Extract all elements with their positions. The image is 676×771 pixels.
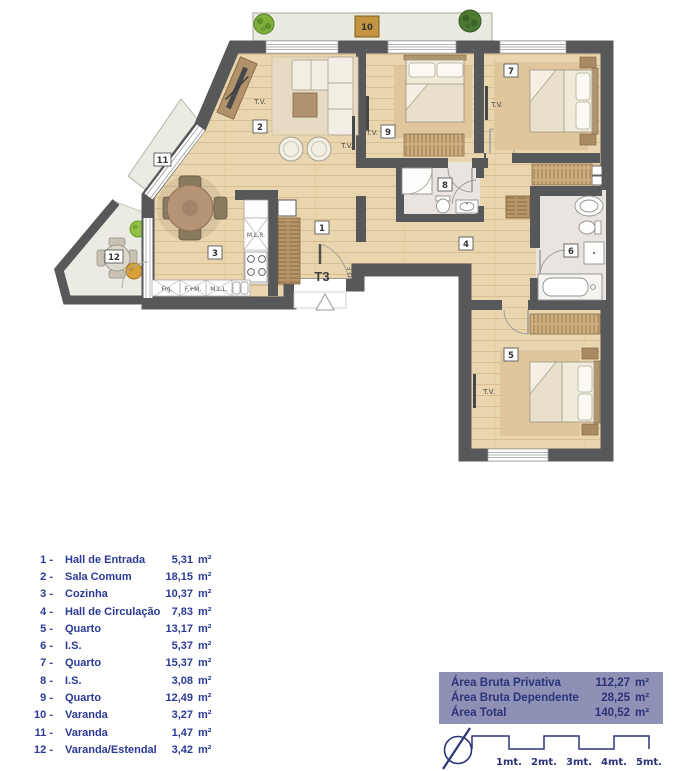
plant-icon	[459, 10, 481, 32]
svg-text:11: 11	[157, 156, 169, 166]
balcony-10: 10	[253, 10, 492, 41]
legend-row: 9 -Quarto12,49m²	[30, 689, 240, 706]
svg-text:3: 3	[212, 249, 218, 259]
legend-number: 1 -	[30, 554, 53, 566]
unit-type-label: T3	[314, 269, 329, 284]
window-room5	[488, 449, 548, 461]
tv-wall-mount	[485, 86, 488, 120]
sink	[456, 200, 478, 213]
legend-row: 2 -Sala Comum18,15m²	[30, 568, 240, 585]
svg-text:1mt.: 1mt.	[496, 757, 522, 768]
tv-label-living-2: T.V.	[340, 142, 353, 150]
balcony-12	[59, 202, 148, 300]
window-room7	[500, 41, 566, 53]
legend-area-value: 5,31	[157, 554, 193, 566]
svg-text:1: 1	[319, 224, 325, 234]
room-label-4: 4	[459, 237, 473, 250]
legend-row: 8 -I.S.3,08m²	[30, 672, 240, 689]
wardrobe	[404, 134, 464, 156]
svg-text:6: 6	[568, 247, 574, 257]
window-room9	[388, 41, 456, 53]
summary-row: Área Total140,52m²	[439, 707, 663, 719]
svg-text:5mt.: 5mt.	[636, 757, 662, 768]
room-label-10: 10	[361, 23, 373, 33]
legend-row: 4 -Hall de Circulação7,83m²	[30, 603, 240, 620]
nightstand	[582, 348, 598, 359]
floor-plan-page: 10	[0, 0, 676, 771]
summary-value: 112,27	[584, 677, 630, 689]
compass-and-scale: 1mt. 2mt. 3mt. 4mt. 5mt.	[437, 723, 667, 771]
dishwasher-label: M.L.L.	[210, 286, 228, 293]
sink	[575, 196, 603, 216]
room-label-7: 7	[504, 64, 518, 77]
kitchen-counter-right	[244, 200, 268, 284]
wardrobe	[530, 314, 600, 334]
washer-label: M.L.R.	[247, 232, 265, 239]
fridge-label: Frg.	[161, 286, 172, 293]
floor-plan-drawing: 10	[0, 0, 676, 545]
svg-text:3mt.: 3mt.	[566, 757, 592, 768]
room-label-1: 1	[315, 221, 329, 234]
shower	[402, 168, 432, 194]
toilet	[579, 221, 601, 234]
summary-row: Área Bruta Dependente28,25m²	[439, 692, 663, 704]
wardrobe	[532, 164, 592, 185]
legend-row: 7 -Quarto15,37m²	[30, 655, 240, 672]
room-label-2: 2	[253, 120, 267, 133]
tv-wall-mount	[473, 374, 476, 408]
tv-wall-mount	[366, 96, 369, 130]
area-summary-table: Área Bruta Privativa112,27m² Área Bruta …	[439, 672, 663, 724]
nightstand	[582, 424, 598, 435]
summary-row: Área Bruta Privativa112,27m²	[439, 677, 663, 689]
summary-label: Área Bruta Privativa	[451, 677, 584, 689]
oven-label: F.+M.	[185, 286, 202, 293]
legend-row: 10 -Varanda3,27m²	[30, 707, 240, 724]
room-label-12: 12	[105, 250, 123, 263]
room-label-8: 8	[438, 178, 452, 191]
room-label-3: 3	[208, 246, 222, 259]
hob	[245, 252, 267, 282]
scale-bar	[472, 736, 649, 749]
coffee-table	[293, 93, 317, 117]
bed	[530, 68, 598, 134]
scale-bar-labels: 1mt. 2mt. 3mt. 4mt. 5mt.	[496, 757, 662, 768]
summary-unit: m²	[630, 677, 655, 689]
room-legend: 1 -Hall de Entrada5,31m² 2 -Sala Comum18…	[30, 551, 240, 759]
legend-row: 5 -Quarto13,17m²	[30, 620, 240, 637]
bed	[530, 361, 600, 423]
plant-icon	[254, 14, 274, 34]
legend-row: 12 -Varanda/Estendal3,42m²	[30, 741, 240, 758]
svg-text:12: 12	[108, 253, 120, 263]
svg-text:2mt.: 2mt.	[531, 757, 557, 768]
electrical-board-label: Q.E.	[347, 265, 354, 277]
room-label-6: 6	[564, 244, 578, 257]
svg-text:4: 4	[463, 240, 469, 250]
window-living	[266, 41, 338, 53]
room-label-11: 11	[154, 153, 171, 166]
room-label-9: 9	[381, 125, 395, 138]
tv-label-room5: T.V.	[482, 388, 495, 396]
legend-row: 11 -Varanda1,47m²	[30, 724, 240, 741]
svg-text:7: 7	[508, 67, 514, 77]
room-label-5: 5	[504, 348, 518, 361]
svg-text:5: 5	[508, 351, 514, 361]
legend-row: 1 -Hall de Entrada5,31m²	[30, 551, 240, 568]
svg-text:2: 2	[257, 123, 263, 133]
cabinet	[584, 242, 604, 264]
pouf	[279, 137, 303, 161]
corridor-closet	[506, 196, 530, 218]
tv-label-room7: T.V.	[490, 101, 503, 109]
svg-text:4mt.: 4mt.	[601, 757, 627, 768]
tv-label-living: T.V.	[253, 98, 266, 106]
hall-closet	[278, 218, 300, 284]
nightstand	[580, 134, 596, 145]
north-compass-icon	[443, 728, 472, 769]
toilet	[436, 196, 450, 213]
legend-row: 6 -I.S.5,37m²	[30, 637, 240, 654]
nightstand	[580, 57, 596, 68]
svg-text:8: 8	[442, 181, 448, 191]
legend-unit: m²	[193, 554, 213, 566]
tv-label-room9: T.V.	[365, 129, 378, 137]
pouf	[307, 137, 331, 161]
bathtub	[538, 274, 602, 300]
bed	[404, 55, 466, 122]
legend-row: 3 -Cozinha10,37m²	[30, 586, 240, 603]
svg-text:9: 9	[385, 128, 391, 138]
legend-room-name: Hall de Entrada	[53, 554, 157, 566]
